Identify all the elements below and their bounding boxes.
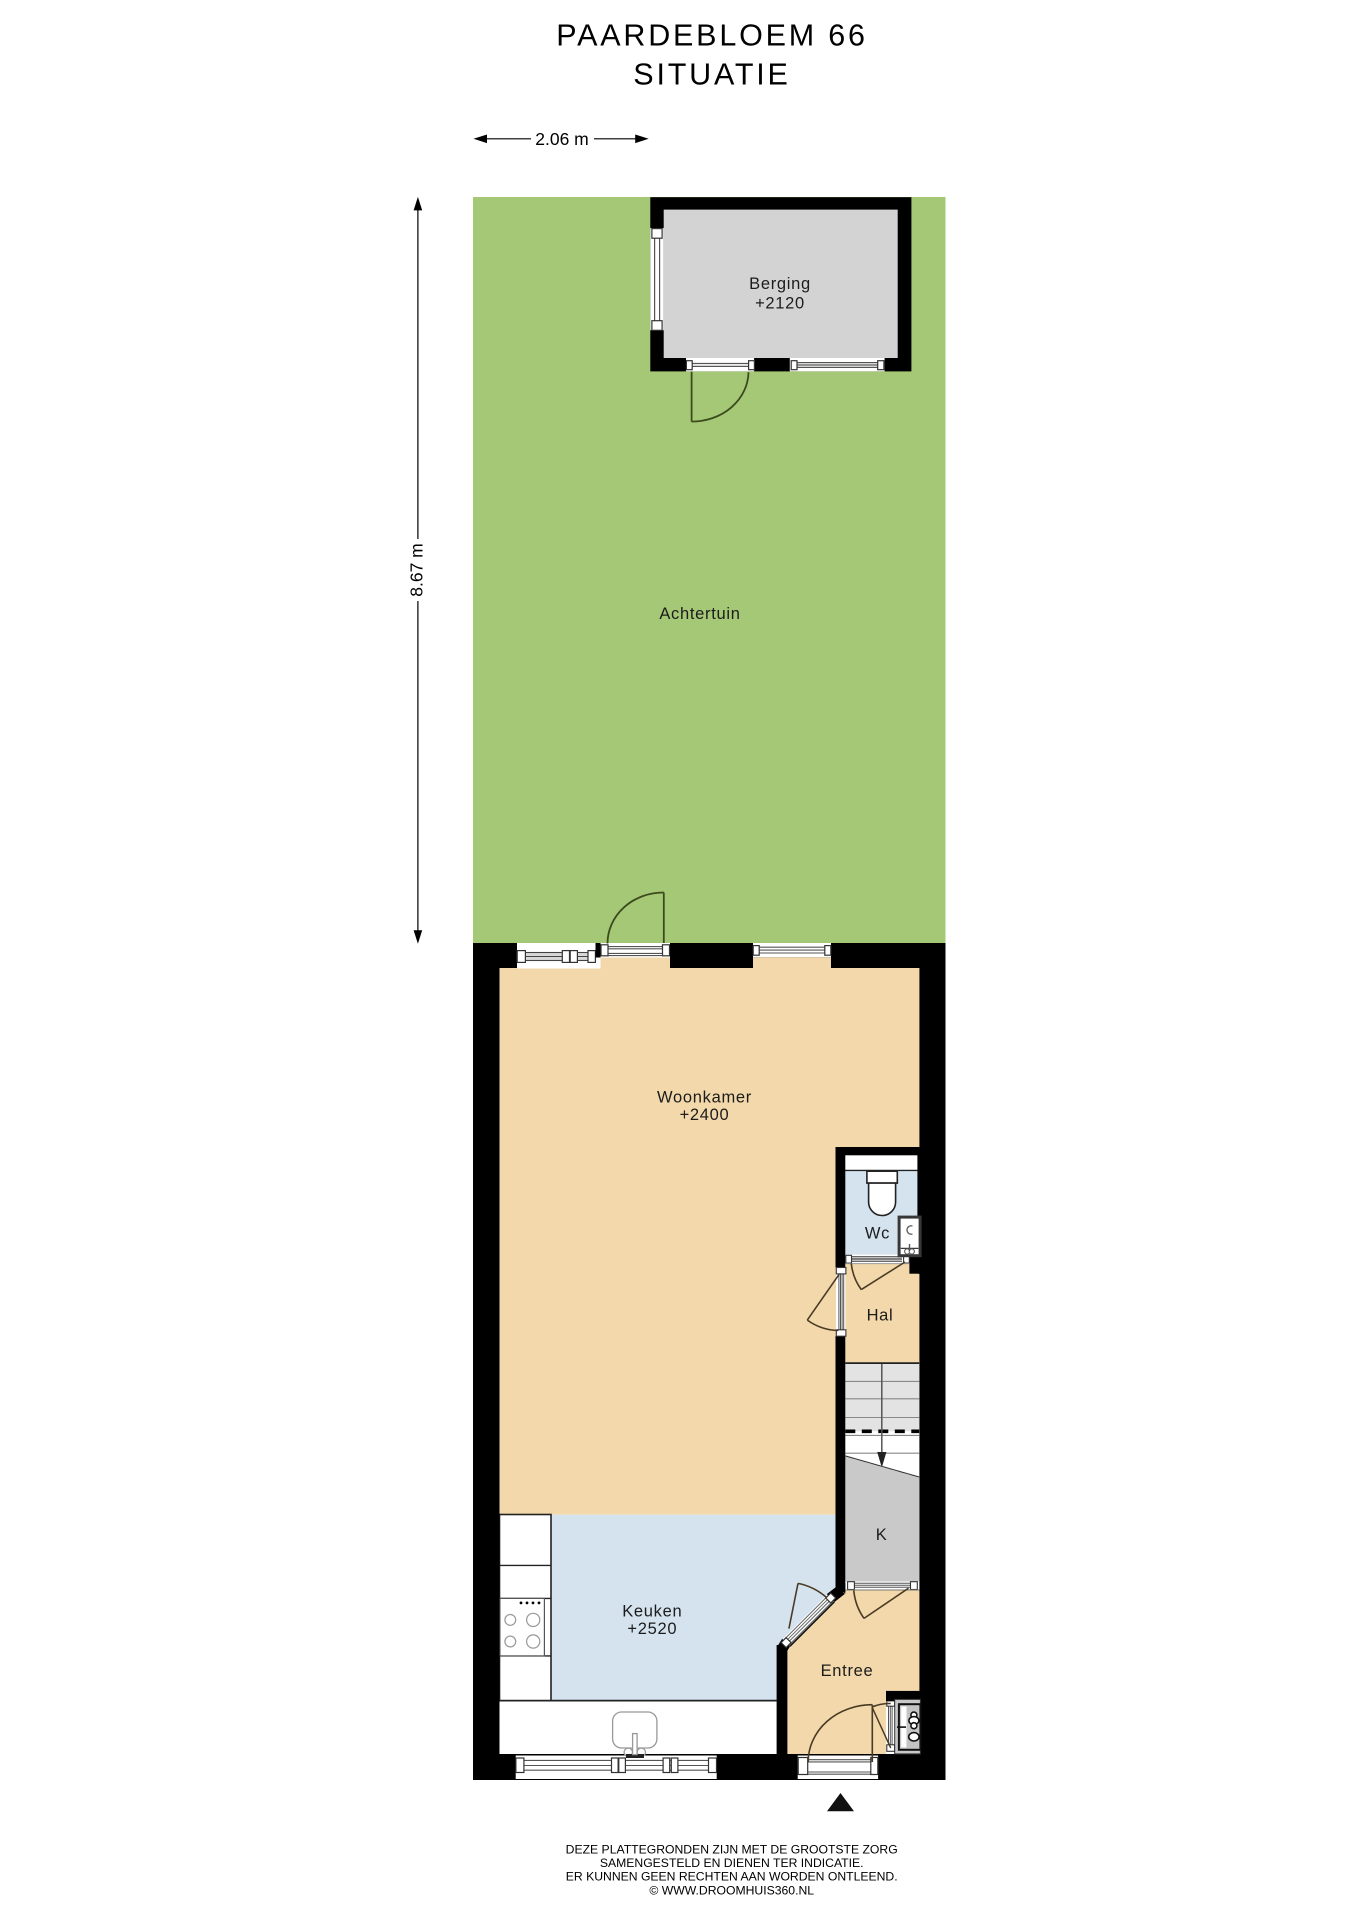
svg-text:Wc: Wc <box>865 1225 890 1243</box>
svg-text:© WWW.DROOMHUIS360.NL: © WWW.DROOMHUIS360.NL <box>649 1883 814 1897</box>
svg-text:SITUATIE: SITUATIE <box>633 58 790 92</box>
svg-text:Achtertuin: Achtertuin <box>659 605 740 623</box>
svg-text:+2400: +2400 <box>680 1106 730 1124</box>
svg-text:Woonkamer: Woonkamer <box>657 1089 752 1107</box>
svg-text:Keuken: Keuken <box>622 1603 682 1621</box>
svg-text:8.67 m: 8.67 m <box>407 543 427 597</box>
svg-text:Hal: Hal <box>867 1307 894 1325</box>
svg-text:Entree: Entree <box>821 1662 874 1680</box>
svg-text:+2120: +2120 <box>755 295 805 313</box>
svg-text:2.06 m: 2.06 m <box>535 129 589 149</box>
svg-text:SAMENGESTELD EN DIENEN TER IND: SAMENGESTELD EN DIENEN TER INDICATIE. <box>600 1856 864 1870</box>
svg-text:K: K <box>876 1526 888 1544</box>
svg-text:PAARDEBLOEM 66: PAARDEBLOEM 66 <box>556 19 868 53</box>
svg-text:+2520: +2520 <box>627 1620 677 1638</box>
svg-text:ER KUNNEN GEEN RECHTEN AAN WOR: ER KUNNEN GEEN RECHTEN AAN WORDEN ONTLEE… <box>566 1870 898 1884</box>
svg-text:DEZE PLATTEGRONDEN ZIJN MET DE: DEZE PLATTEGRONDEN ZIJN MET DE GROOTSTE … <box>566 1842 898 1856</box>
svg-text:Berging: Berging <box>749 275 811 293</box>
